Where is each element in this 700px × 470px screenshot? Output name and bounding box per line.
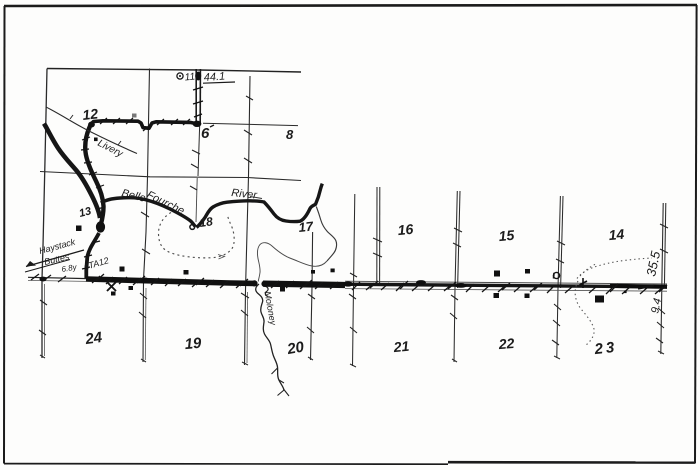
svg-text:21: 21	[392, 338, 410, 355]
svg-text:11: 11	[184, 71, 195, 83]
svg-text:16: 16	[397, 221, 414, 238]
svg-text:22: 22	[497, 335, 515, 352]
svg-text:8: 8	[286, 127, 294, 142]
svg-text:12: 12	[82, 105, 99, 123]
svg-text:23: 23	[593, 339, 618, 358]
svg-text:18: 18	[198, 214, 213, 230]
svg-text:17: 17	[298, 218, 315, 235]
svg-text:6: 6	[201, 125, 210, 142]
svg-text:15: 15	[498, 227, 515, 244]
svg-text:19: 19	[184, 335, 203, 353]
svg-text:14: 14	[608, 226, 625, 243]
svg-text:24: 24	[83, 329, 104, 348]
svg-text:20: 20	[285, 338, 306, 358]
